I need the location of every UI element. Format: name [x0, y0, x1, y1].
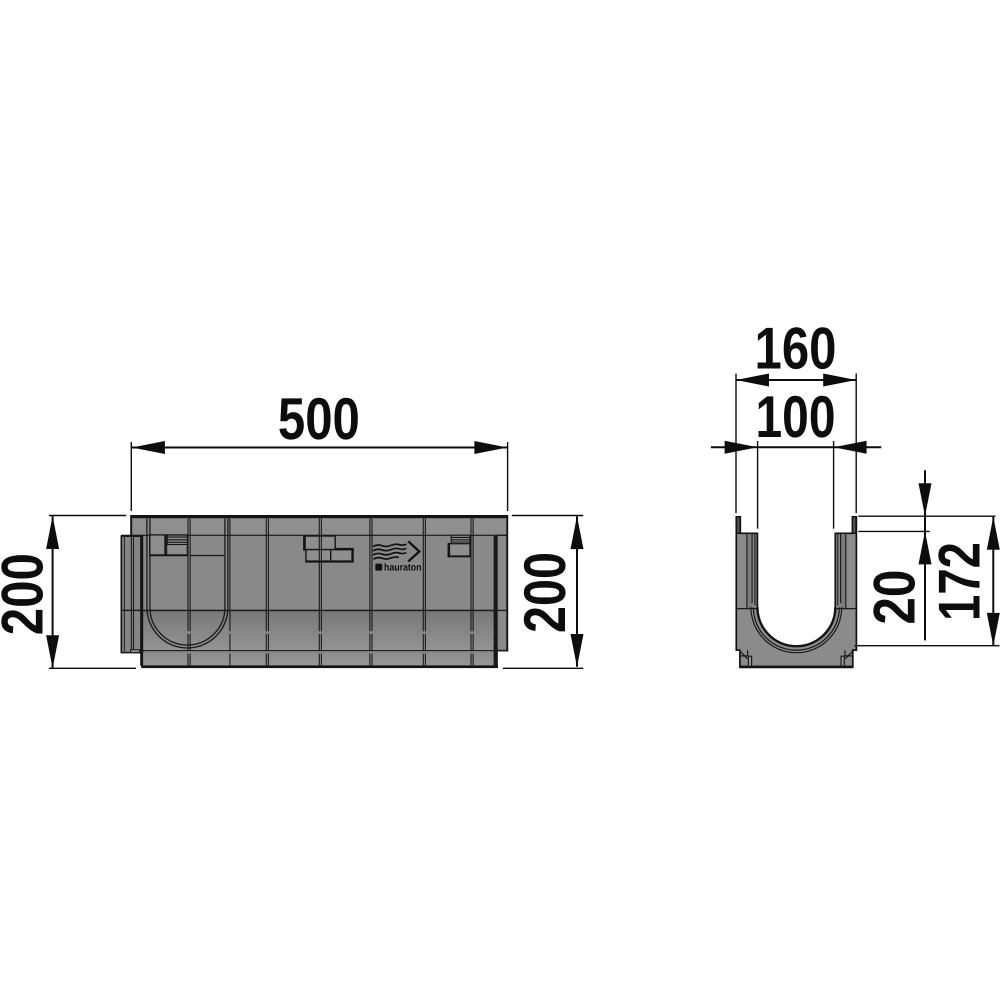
svg-text:100: 100	[756, 384, 836, 450]
svg-text:172: 172	[927, 542, 993, 621]
svg-text:500: 500	[278, 386, 360, 452]
svg-text:hauraton: hauraton	[384, 563, 422, 574]
svg-text:20: 20	[862, 570, 928, 625]
svg-text:200: 200	[0, 553, 56, 635]
svg-text:200: 200	[512, 552, 578, 633]
svg-text:160: 160	[755, 315, 837, 381]
